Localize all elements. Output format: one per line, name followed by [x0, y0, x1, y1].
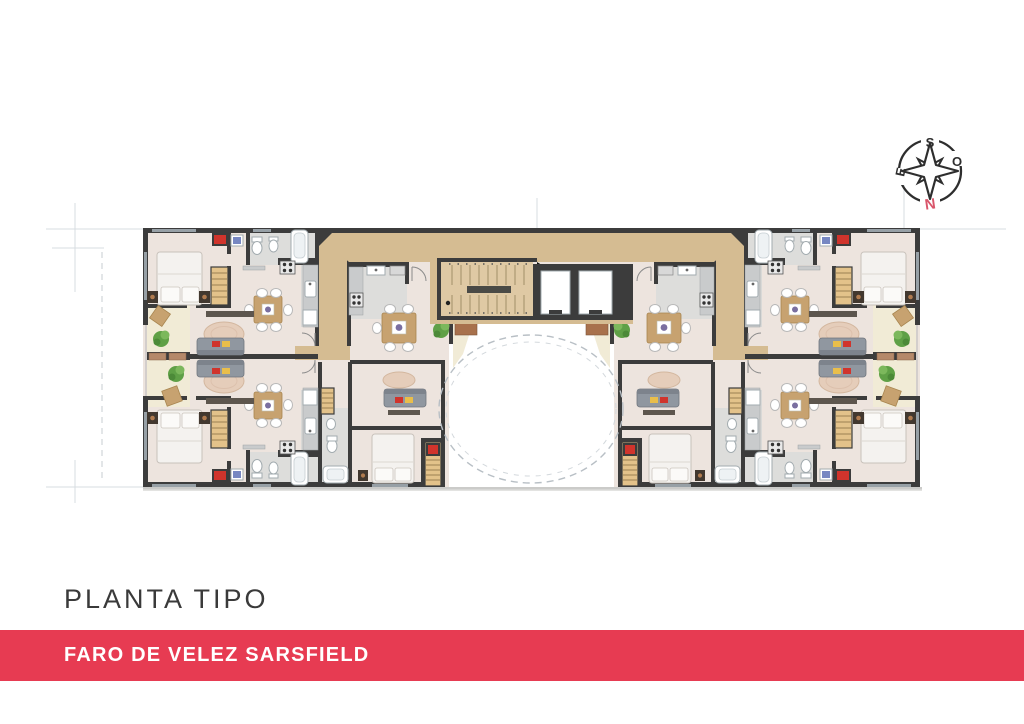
page-title: PLANTA TIPO	[64, 584, 269, 615]
elevators	[533, 264, 633, 320]
floor-plan-canvas: S O E N	[0, 0, 1024, 724]
compass-rose: S O E N	[892, 133, 965, 214]
building-shadow-line-2	[143, 490, 922, 492]
compass-label-s: S	[926, 135, 935, 150]
project-banner: FARO DE VELEZ SARSFIELD	[0, 630, 1024, 681]
gap-closet	[425, 442, 441, 486]
compass-label-e: E	[892, 166, 909, 178]
building-shadow-line	[143, 487, 922, 490]
page: S O E N PLANTA TIPO FARO DE VELEZ SARSFI…	[0, 0, 1024, 724]
corridor-hall	[315, 233, 748, 262]
compass-label-o: O	[952, 154, 962, 169]
stairs	[437, 258, 545, 320]
project-banner-text: FARO DE VELEZ SARSFIELD	[64, 630, 369, 681]
